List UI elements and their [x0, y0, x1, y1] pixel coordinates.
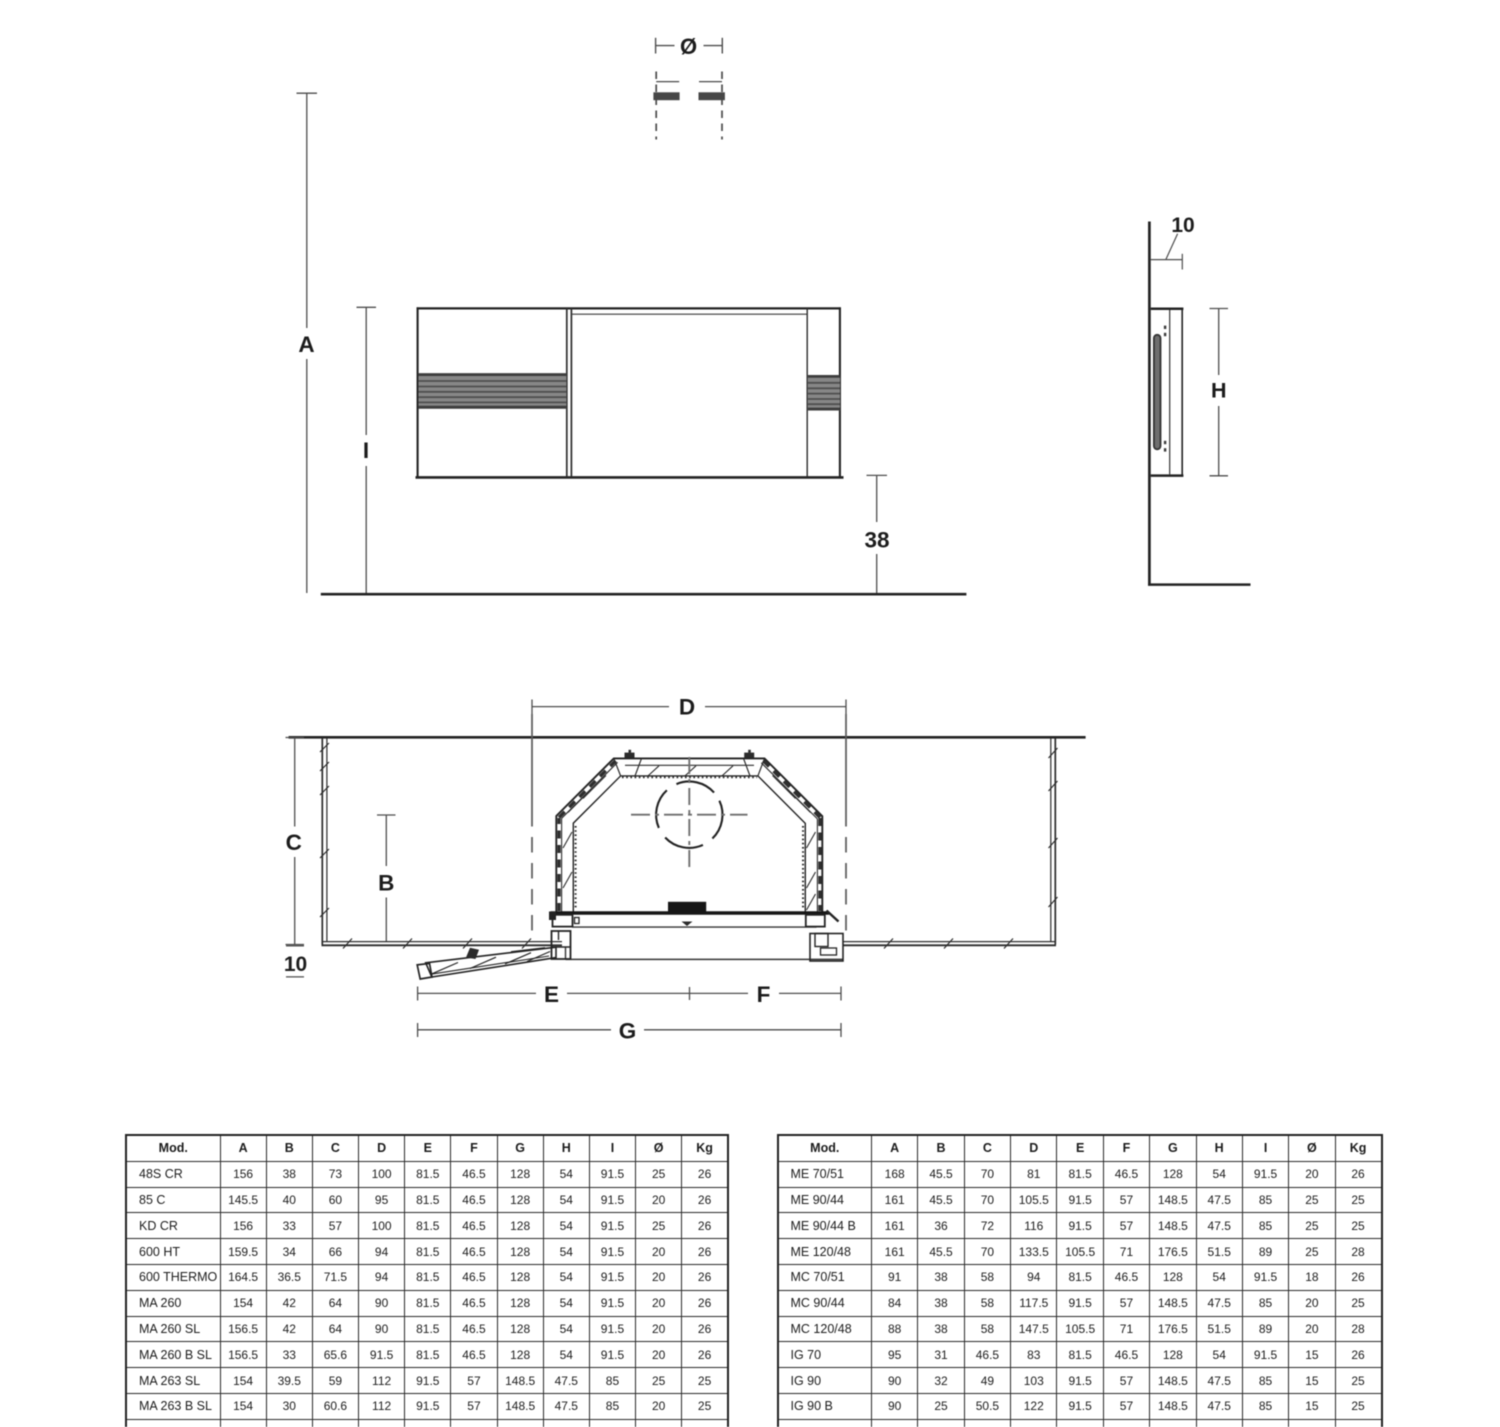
svg-text:B: B: [378, 871, 394, 896]
svg-text:F: F: [757, 982, 771, 1007]
svg-text:A: A: [298, 332, 314, 357]
svg-text:C: C: [286, 830, 302, 855]
svg-text:G: G: [619, 1019, 637, 1044]
svg-text:H: H: [1211, 379, 1227, 403]
svg-text:Ø: Ø: [680, 34, 697, 59]
svg-text:E: E: [544, 982, 559, 1007]
svg-text:D: D: [679, 695, 695, 720]
svg-text:10: 10: [284, 953, 307, 976]
svg-text:38: 38: [864, 528, 889, 553]
svg-text:I: I: [363, 438, 369, 463]
svg-text:10: 10: [1171, 214, 1194, 237]
